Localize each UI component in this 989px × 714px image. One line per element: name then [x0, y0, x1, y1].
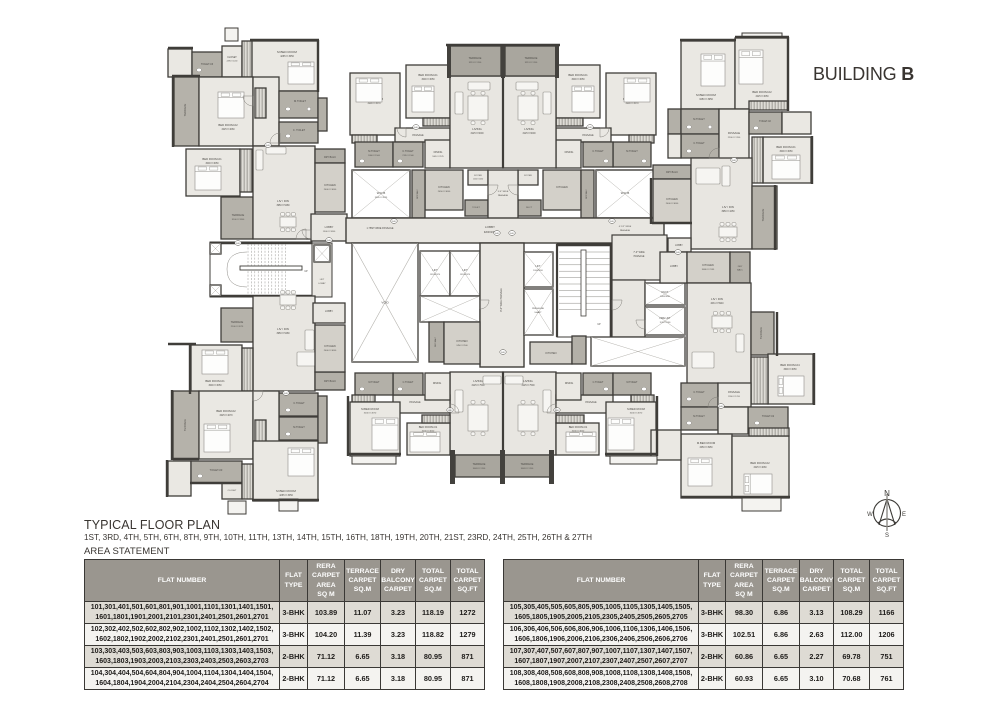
svg-text:LIVING: LIVING — [524, 127, 534, 131]
svg-text:M.BED ROOM: M.BED ROOM — [696, 93, 716, 97]
svg-text:PASSAGE: PASSAGE — [582, 134, 594, 137]
svg-text:LOBBY: LOBBY — [318, 283, 326, 285]
svg-text:3425 X 4060: 3425 X 4060 — [221, 129, 235, 131]
svg-text:TOILET-03: TOILET-03 — [210, 468, 223, 472]
svg-text:3213 X 1700: 3213 X 1700 — [525, 62, 538, 64]
svg-text:FOYER: FOYER — [524, 175, 532, 177]
svg-text:2490 X 2200: 2490 X 2200 — [227, 61, 238, 63]
svg-text:TERRACE: TERRACE — [473, 462, 486, 466]
svg-text:LOBBY: LOBBY — [325, 310, 333, 313]
svg-text:3125 X 7500: 3125 X 7500 — [521, 385, 535, 387]
svg-text:3425 X 3050: 3425 X 3050 — [755, 96, 769, 98]
svg-text:W.D.B: W.D.B — [377, 191, 386, 195]
svg-text:9'-0" WIDE PASSAGE: 9'-0" WIDE PASSAGE — [500, 288, 503, 312]
svg-text:DRY BALC: DRY BALC — [324, 380, 336, 383]
svg-text:3950 X 5480: 3950 X 5480 — [276, 333, 290, 335]
svg-text:M.TOILET: M.TOILET — [693, 415, 705, 418]
svg-text:C.TOILET: C.TOILET — [403, 381, 414, 384]
svg-text:DRY BALC: DRY BALC — [324, 156, 336, 159]
svg-text:TOILET-02: TOILET-02 — [762, 415, 775, 418]
svg-text:TERRACE: TERRACE — [231, 320, 244, 324]
svg-text:C.TOILET: C.TOILET — [592, 150, 604, 153]
svg-text:BED ROOM-02: BED ROOM-02 — [216, 409, 236, 413]
svg-text:CLOSET: CLOSET — [228, 490, 237, 492]
svg-text:1.75MT WIDE PASSAGE: 1.75MT WIDE PASSAGE — [367, 227, 394, 230]
svg-text:KITCHEN: KITCHEN — [457, 340, 468, 343]
svg-text:3200 X 4570: 3200 X 4570 — [364, 413, 377, 415]
svg-text:TOILET-03: TOILET-03 — [201, 63, 214, 66]
svg-text:CLOSET: CLOSET — [227, 56, 237, 59]
svg-text:SHAFT: SHAFT — [534, 311, 542, 314]
svg-text:2450 X 3050: 2450 X 3050 — [438, 191, 451, 193]
svg-text:1665 X 2125: 1665 X 2125 — [432, 156, 444, 158]
svg-text:BALC: BALC — [737, 269, 743, 272]
svg-text:1970 X 1980: 1970 X 1980 — [660, 322, 671, 324]
svg-text:N: N — [884, 489, 890, 498]
svg-text:LOBBY: LOBBY — [325, 225, 334, 229]
svg-text:FOYER: FOYER — [474, 175, 482, 177]
svg-text:2400 X 3050: 2400 X 3050 — [324, 189, 337, 191]
svg-text:M.TOILET: M.TOILET — [293, 426, 305, 429]
svg-text:3063 X 1700: 3063 X 1700 — [473, 468, 486, 470]
svg-text:3200 X 4570: 3200 X 4570 — [630, 413, 643, 415]
svg-text:3063 X 1700: 3063 X 1700 — [521, 468, 534, 470]
svg-text:TERRACE: TERRACE — [184, 419, 187, 431]
svg-text:4265 X 3050: 4265 X 3050 — [280, 55, 294, 58]
svg-text:2440X1830: 2440X1830 — [660, 296, 670, 298]
svg-text:3450 X 3950: 3450 X 3950 — [699, 447, 713, 449]
svg-text:M.TOILET: M.TOILET — [693, 118, 705, 121]
svg-text:TOILET: TOILET — [472, 207, 480, 209]
svg-text:2450 X 2100: 2450 X 2100 — [456, 345, 468, 347]
svg-text:DINING: DINING — [433, 382, 442, 385]
svg-text:TERRACE: TERRACE — [521, 462, 534, 466]
svg-text:KITCHEN: KITCHEN — [324, 183, 336, 187]
svg-text:3000 X 3050: 3000 X 3050 — [208, 385, 222, 387]
svg-text:M.TOILET: M.TOILET — [369, 381, 381, 384]
svg-text:3450 X 3950: 3450 X 3950 — [699, 98, 713, 101]
svg-text:M.BED ROOM: M.BED ROOM — [361, 407, 379, 411]
svg-text:DRY BALC: DRY BALC — [666, 171, 678, 174]
svg-text:TOILET-02: TOILET-02 — [759, 120, 771, 123]
svg-text:1950X2470: 1950X2470 — [460, 274, 471, 276]
svg-text:W.D.B: W.D.B — [621, 191, 630, 195]
svg-text:1220 X 1050: 1220 X 1050 — [473, 179, 483, 181]
svg-text:3425 X 4070: 3425 X 4070 — [219, 415, 233, 417]
svg-text:KITCHEN: KITCHEN — [324, 344, 336, 348]
svg-text:M.TOILET: M.TOILET — [368, 150, 380, 153]
svg-text:3000 X 3050: 3000 X 3050 — [205, 163, 219, 165]
svg-text:3'-6" WIDE: 3'-6" WIDE — [498, 191, 509, 193]
svg-text:3600 X 3050: 3600 X 3050 — [783, 369, 797, 371]
svg-text:LOBBY: LOBBY — [485, 225, 495, 229]
svg-text:PASSAGE: PASSAGE — [620, 229, 631, 232]
svg-text:M.TOILET: M.TOILET — [627, 381, 639, 384]
svg-text:3950 X 5480: 3950 X 5480 — [276, 205, 290, 207]
svg-text:PRESSURE: PRESSURE — [532, 308, 545, 310]
svg-text:DUCT: DUCT — [526, 207, 533, 209]
svg-text:2400 X 1500: 2400 X 1500 — [368, 155, 381, 157]
svg-text:3200 X 4570: 3200 X 4570 — [625, 103, 639, 105]
svg-text:BED ROOM-01: BED ROOM-01 — [202, 157, 222, 161]
svg-text:3200 X 4570: 3200 X 4570 — [367, 103, 381, 105]
svg-text:FIRE LIFT: FIRE LIFT — [659, 317, 671, 320]
svg-text:2400 X 3050: 2400 X 3050 — [324, 350, 337, 352]
svg-text:LIV / DIN: LIV / DIN — [711, 297, 723, 301]
svg-text:BED ROOM-01: BED ROOM-01 — [776, 145, 796, 149]
svg-text:2135 X 1500: 2135 X 1500 — [402, 155, 414, 157]
svg-text:VOID: VOID — [381, 301, 389, 305]
svg-text:TERRACE: TERRACE — [232, 213, 245, 217]
svg-text:BED ROOM-01: BED ROOM-01 — [568, 73, 588, 77]
svg-text:LIVING: LIVING — [473, 379, 483, 383]
svg-text:M.TOILET: M.TOILET — [294, 99, 306, 103]
svg-text:C. TOILET: C. TOILET — [293, 128, 306, 132]
svg-text:C.TOILET: C.TOILET — [293, 402, 305, 405]
svg-text:W: W — [867, 512, 873, 518]
svg-text:C.TOILET: C.TOILET — [693, 391, 705, 394]
svg-text:LOBBY: LOBBY — [675, 245, 683, 247]
svg-text:PASSAGE: PASSAGE — [412, 134, 424, 137]
svg-text:BED ROOM-01: BED ROOM-01 — [419, 425, 438, 429]
svg-text:TERRACE: TERRACE — [760, 327, 763, 339]
svg-text:DINING: DINING — [565, 382, 574, 385]
svg-text:2400 X 3050: 2400 X 3050 — [666, 203, 679, 205]
svg-text:2200 X 1700: 2200 X 1700 — [728, 137, 741, 139]
svg-text:LOBBY: LOBBY — [670, 265, 678, 268]
svg-text:TERRACE: TERRACE — [525, 56, 538, 60]
svg-text:3100 X 1950: 3100 X 1950 — [232, 219, 245, 221]
svg-text:2100 X 2075: 2100 X 2075 — [231, 326, 244, 328]
svg-text:3000 X 3050: 3000 X 3050 — [421, 79, 435, 81]
svg-text:3000 X 3050: 3000 X 3050 — [571, 79, 585, 81]
svg-text:7'-0" WIDE: 7'-0" WIDE — [633, 252, 645, 254]
svg-text:3125 X 7500: 3125 X 7500 — [471, 385, 485, 387]
svg-text:3950 X 4250: 3950 X 4250 — [721, 211, 735, 213]
svg-text:DINING: DINING — [565, 151, 574, 154]
svg-text:M.BED ROOM: M.BED ROOM — [697, 441, 716, 445]
svg-text:LIFT: LIFT — [432, 268, 438, 272]
svg-text:4265 X 3050: 4265 X 3050 — [279, 494, 293, 497]
svg-text:1950X2470: 1950X2470 — [430, 274, 441, 276]
svg-text:PASSAGE: PASSAGE — [409, 401, 421, 404]
svg-text:DRY: DRY — [738, 266, 743, 268]
svg-text:KITCHEN: KITCHEN — [546, 352, 557, 355]
svg-text:2000X1950: 2000X1950 — [533, 270, 543, 272]
svg-text:PASSAGE: PASSAGE — [634, 255, 645, 258]
svg-text:KITCHEN: KITCHEN — [666, 197, 678, 201]
svg-text:C.TOILET: C.TOILET — [402, 150, 414, 153]
svg-text:LIVING: LIVING — [472, 127, 482, 131]
svg-text:3000 X 3050: 3000 X 3050 — [779, 151, 793, 153]
svg-text:3080 X 2135: 3080 X 2135 — [702, 269, 715, 271]
svg-text:E: E — [902, 512, 906, 518]
svg-text:S: S — [885, 533, 889, 539]
svg-text:PASSAGE: PASSAGE — [498, 194, 509, 197]
svg-text:2200 X 1700: 2200 X 1700 — [728, 396, 741, 398]
svg-text:TERRACE: TERRACE — [469, 56, 482, 60]
svg-text:PASSAGE: PASSAGE — [585, 401, 597, 404]
svg-text:M.TOILET: M.TOILET — [626, 150, 638, 153]
svg-text:LIVING: LIVING — [523, 379, 533, 383]
svg-text:UP: UP — [304, 270, 308, 273]
svg-text:LIV / DIN: LIV / DIN — [722, 205, 734, 209]
svg-text:3213 X 1700: 3213 X 1700 — [469, 62, 482, 64]
svg-text:BED ROOM-01: BED ROOM-01 — [569, 425, 588, 429]
svg-text:DUCT: DUCT — [662, 291, 669, 294]
svg-text:M.BED ROOM: M.BED ROOM — [277, 50, 297, 54]
svg-text:M.BED ROOM: M.BED ROOM — [276, 489, 296, 493]
svg-text:LIV / DIN: LIV / DIN — [277, 199, 289, 203]
svg-text:UP: UP — [597, 323, 601, 326]
svg-text:BED ROOM-04: BED ROOM-04 — [780, 363, 800, 367]
svg-text:DRY BALC: DRY BALC — [416, 189, 419, 199]
svg-text:KITCHEN: KITCHEN — [556, 185, 568, 189]
svg-text:BED ROOM-02: BED ROOM-02 — [218, 123, 238, 127]
svg-text:4031 X 5940: 4031 X 5940 — [710, 303, 724, 305]
svg-text:KITCHEN: KITCHEN — [438, 185, 450, 189]
svg-text:BED ROOM-01: BED ROOM-01 — [418, 73, 438, 77]
svg-text:DRY BALC: DRY BALC — [434, 336, 437, 346]
svg-text:DRY BALC: DRY BALC — [585, 189, 588, 199]
svg-text:DINING: DINING — [434, 151, 443, 154]
svg-text:3125 X 6000: 3125 X 6000 — [470, 133, 484, 135]
svg-text:M.BED ROOM: M.BED ROOM — [627, 407, 645, 411]
svg-text:BED ROOM-02: BED ROOM-02 — [752, 90, 772, 94]
svg-text:LIFT: LIFT — [320, 279, 325, 281]
svg-text:LIFT: LIFT — [535, 265, 541, 268]
svg-text:BED ROOM-01: BED ROOM-01 — [205, 379, 225, 383]
svg-text:TERRACE: TERRACE — [183, 104, 187, 117]
svg-text:BED ROOM-02: BED ROOM-02 — [750, 461, 770, 465]
svg-text:LIV / DIN: LIV / DIN — [277, 327, 289, 331]
svg-text:C.TOILET: C.TOILET — [693, 142, 705, 145]
svg-text:LIFT: LIFT — [462, 268, 468, 272]
svg-text:PASSAGE: PASSAGE — [728, 391, 740, 394]
svg-text:1500 X 1850: 1500 X 1850 — [323, 231, 336, 233]
svg-text:PASSAGE: PASSAGE — [728, 131, 740, 135]
svg-text:TERRACE: TERRACE — [761, 209, 765, 222]
svg-text:3365 X 2625: 3365 X 2625 — [375, 197, 388, 199]
svg-text:C.TOILET: C.TOILET — [593, 381, 604, 384]
svg-text:4'-1/2" WIDE: 4'-1/2" WIDE — [619, 226, 632, 228]
svg-text:3425 X 4060: 3425 X 4060 — [753, 467, 767, 469]
svg-text:3125 X 6000: 3125 X 6000 — [522, 133, 536, 135]
svg-text:KITCHEN: KITCHEN — [702, 263, 714, 267]
